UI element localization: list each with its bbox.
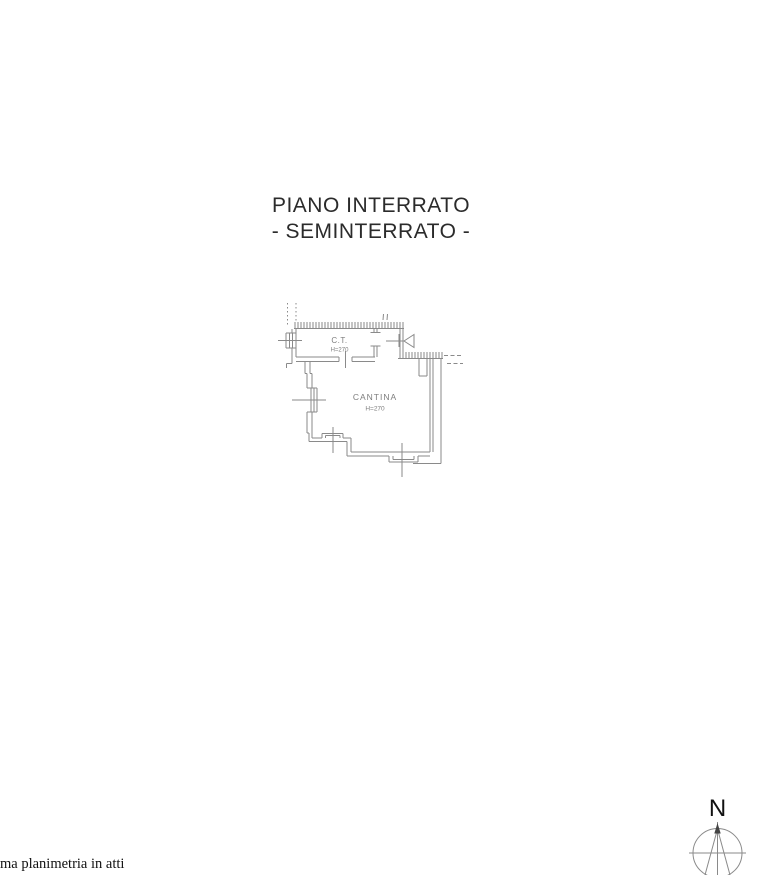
hatched-wall-top — [294, 322, 404, 329]
north-compass: N — [689, 795, 746, 875]
north-label: N — [709, 795, 726, 822]
window-cantina-left — [292, 388, 326, 412]
dashed-projection-lines — [444, 356, 463, 364]
window-niche-bottom-right — [389, 443, 418, 477]
footer-note: ma planimetria in atti — [0, 856, 124, 873]
window-ct-left — [278, 333, 302, 348]
window-niche-bottom-left — [322, 427, 343, 453]
room-label-ct: C.T. — [331, 336, 347, 345]
break-mark — [383, 314, 388, 320]
room-height-cantina: H=270 — [365, 406, 385, 413]
room-height-ct: H=270 — [331, 348, 350, 354]
hatched-wall-right — [398, 352, 443, 359]
room-label-cantina: CANTINA — [353, 392, 397, 402]
scanned-floorplan-page: PIANO INTERRATO - SEMINTERRATO - — [0, 0, 757, 875]
floor-plan-drawing: C.T. H=270 CANTINA H=270 N — [0, 0, 757, 875]
room-labels: C.T. H=270 CANTINA H=270 — [331, 336, 398, 413]
